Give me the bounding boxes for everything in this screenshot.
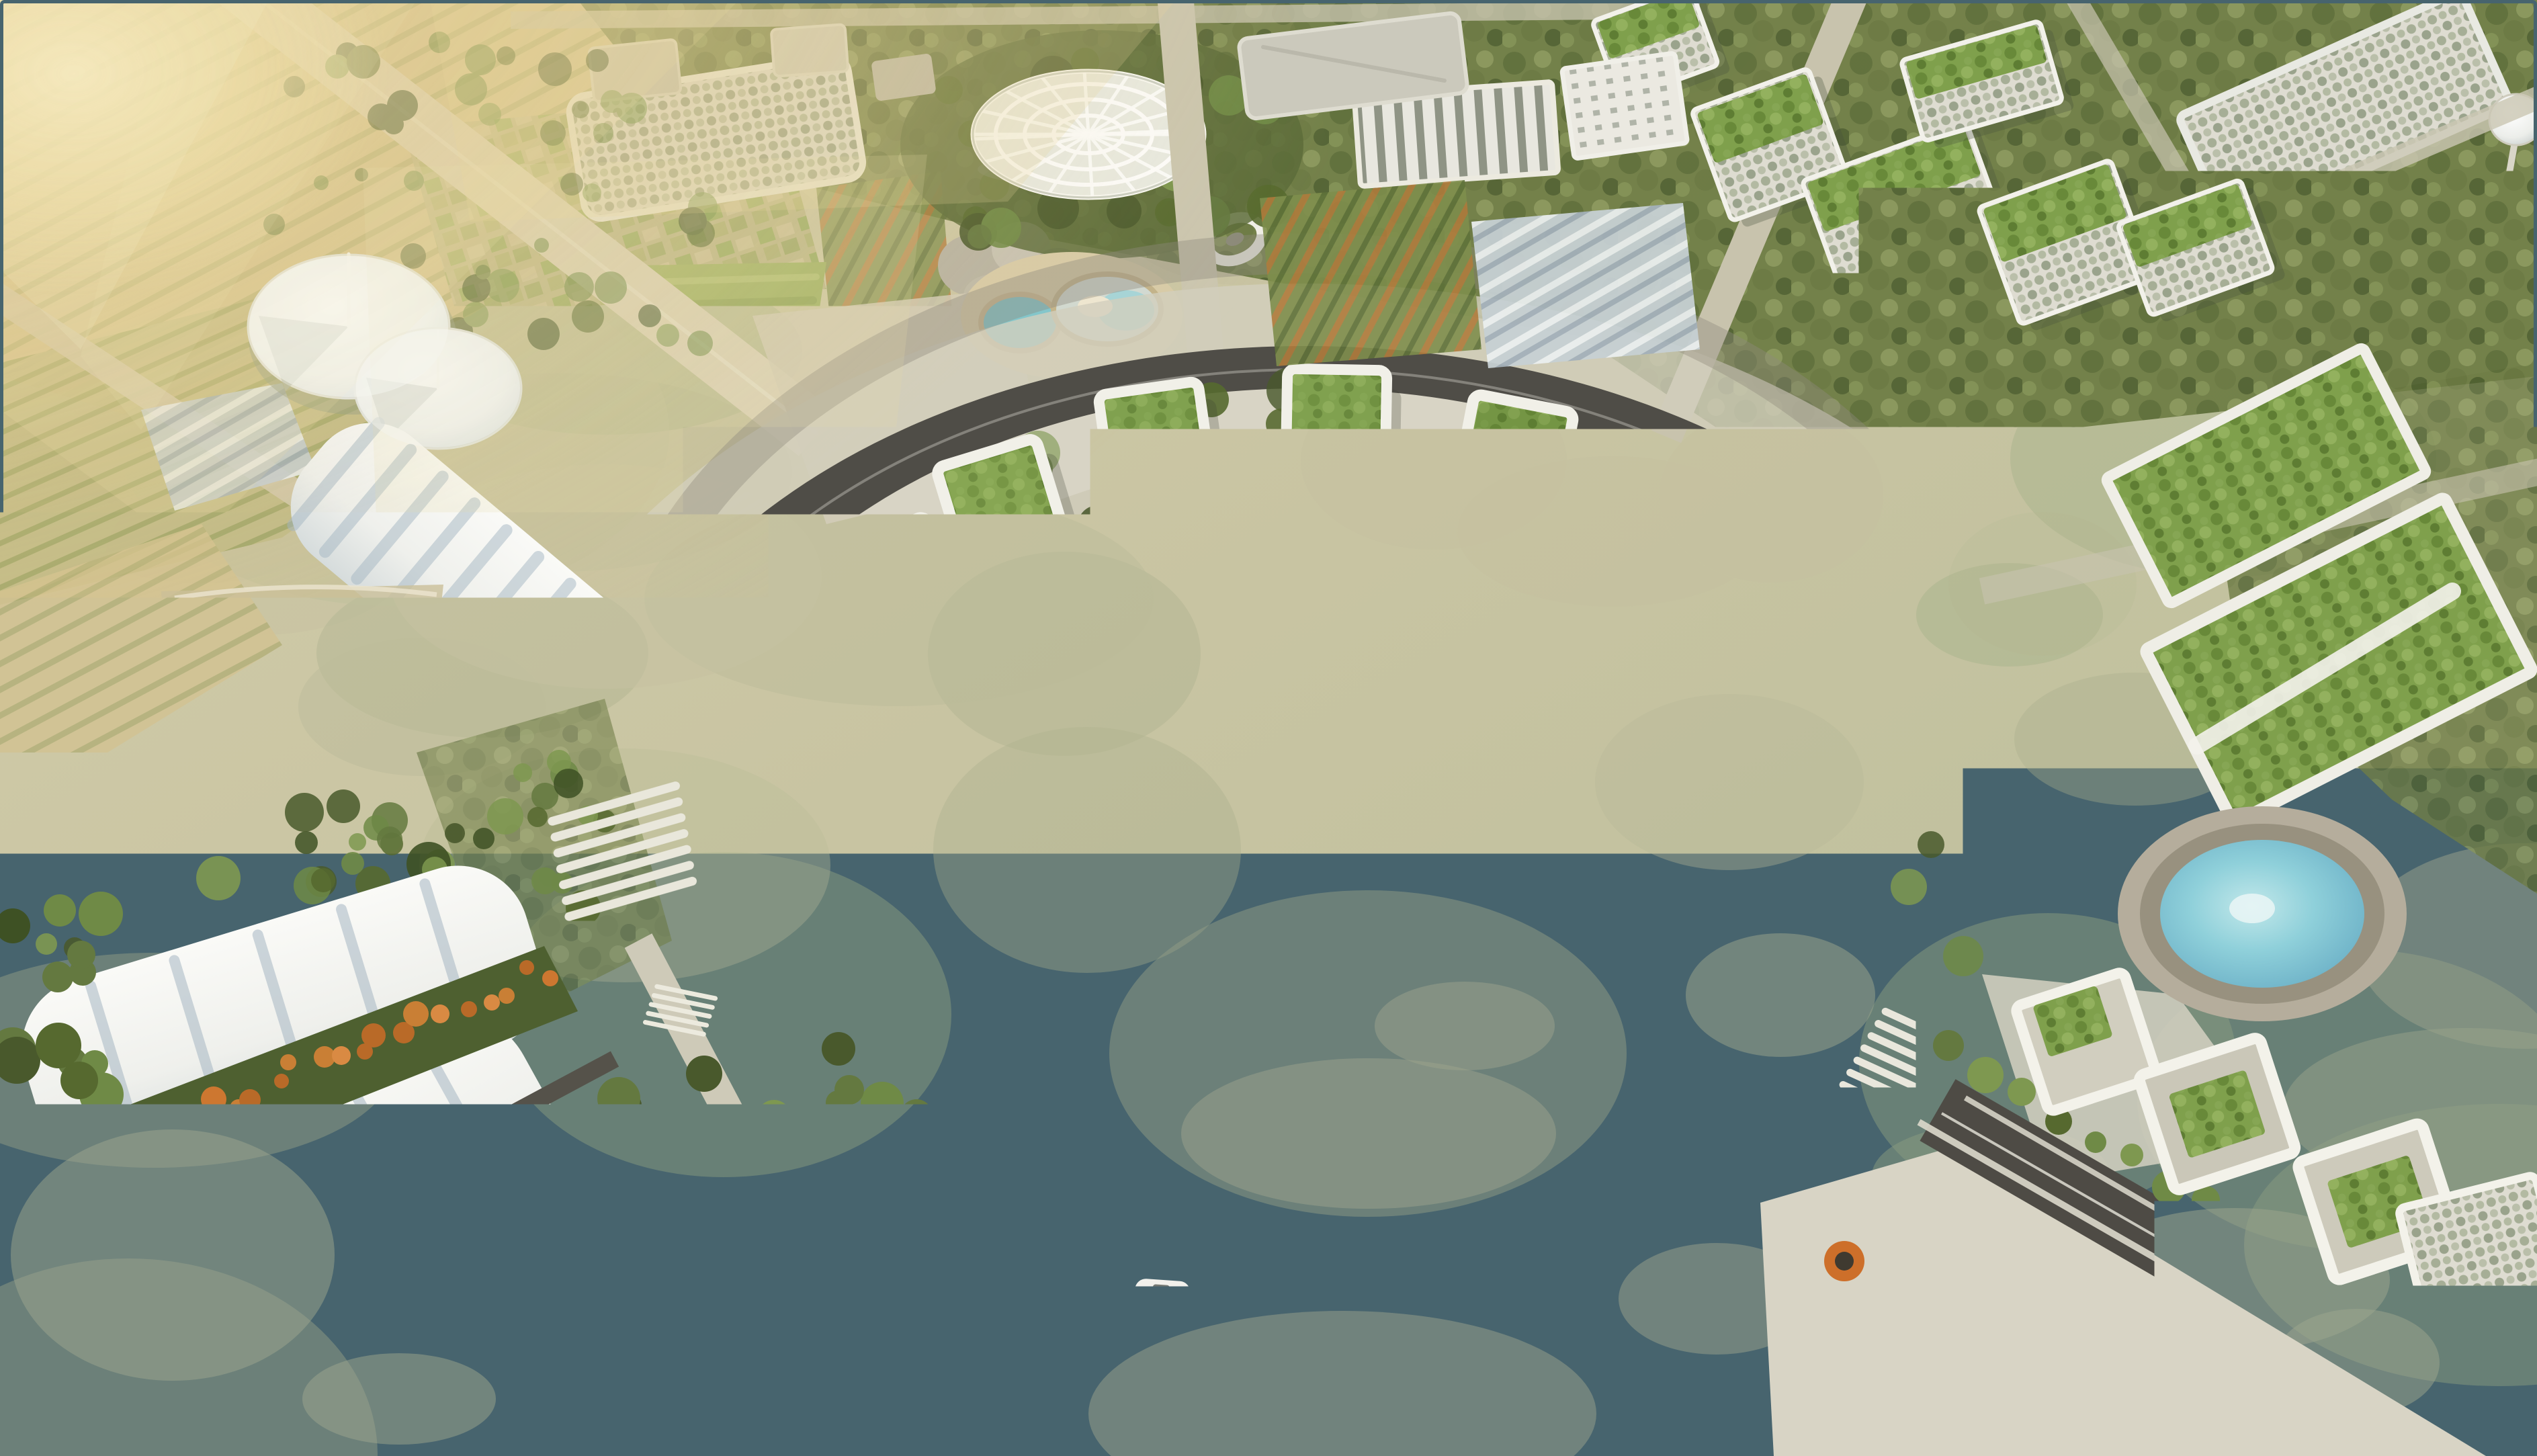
svg-text:AI-Generated: AI-Generated: [35, 1386, 265, 1435]
